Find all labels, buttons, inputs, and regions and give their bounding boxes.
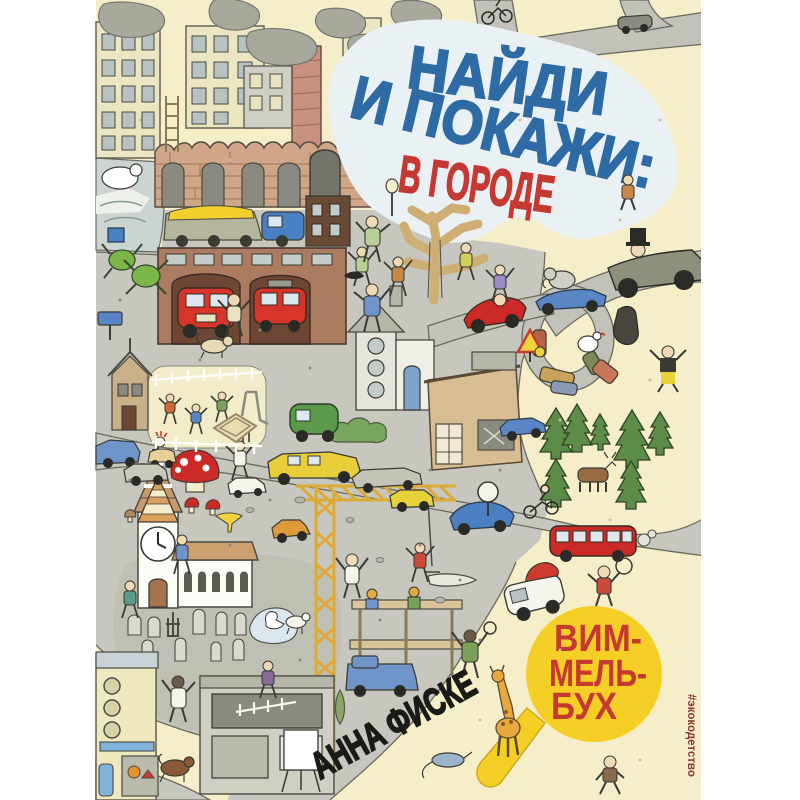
svg-text:БУХ: БУХ: [551, 686, 618, 728]
svg-text:#экокодетство: #экокодетство: [685, 694, 697, 777]
